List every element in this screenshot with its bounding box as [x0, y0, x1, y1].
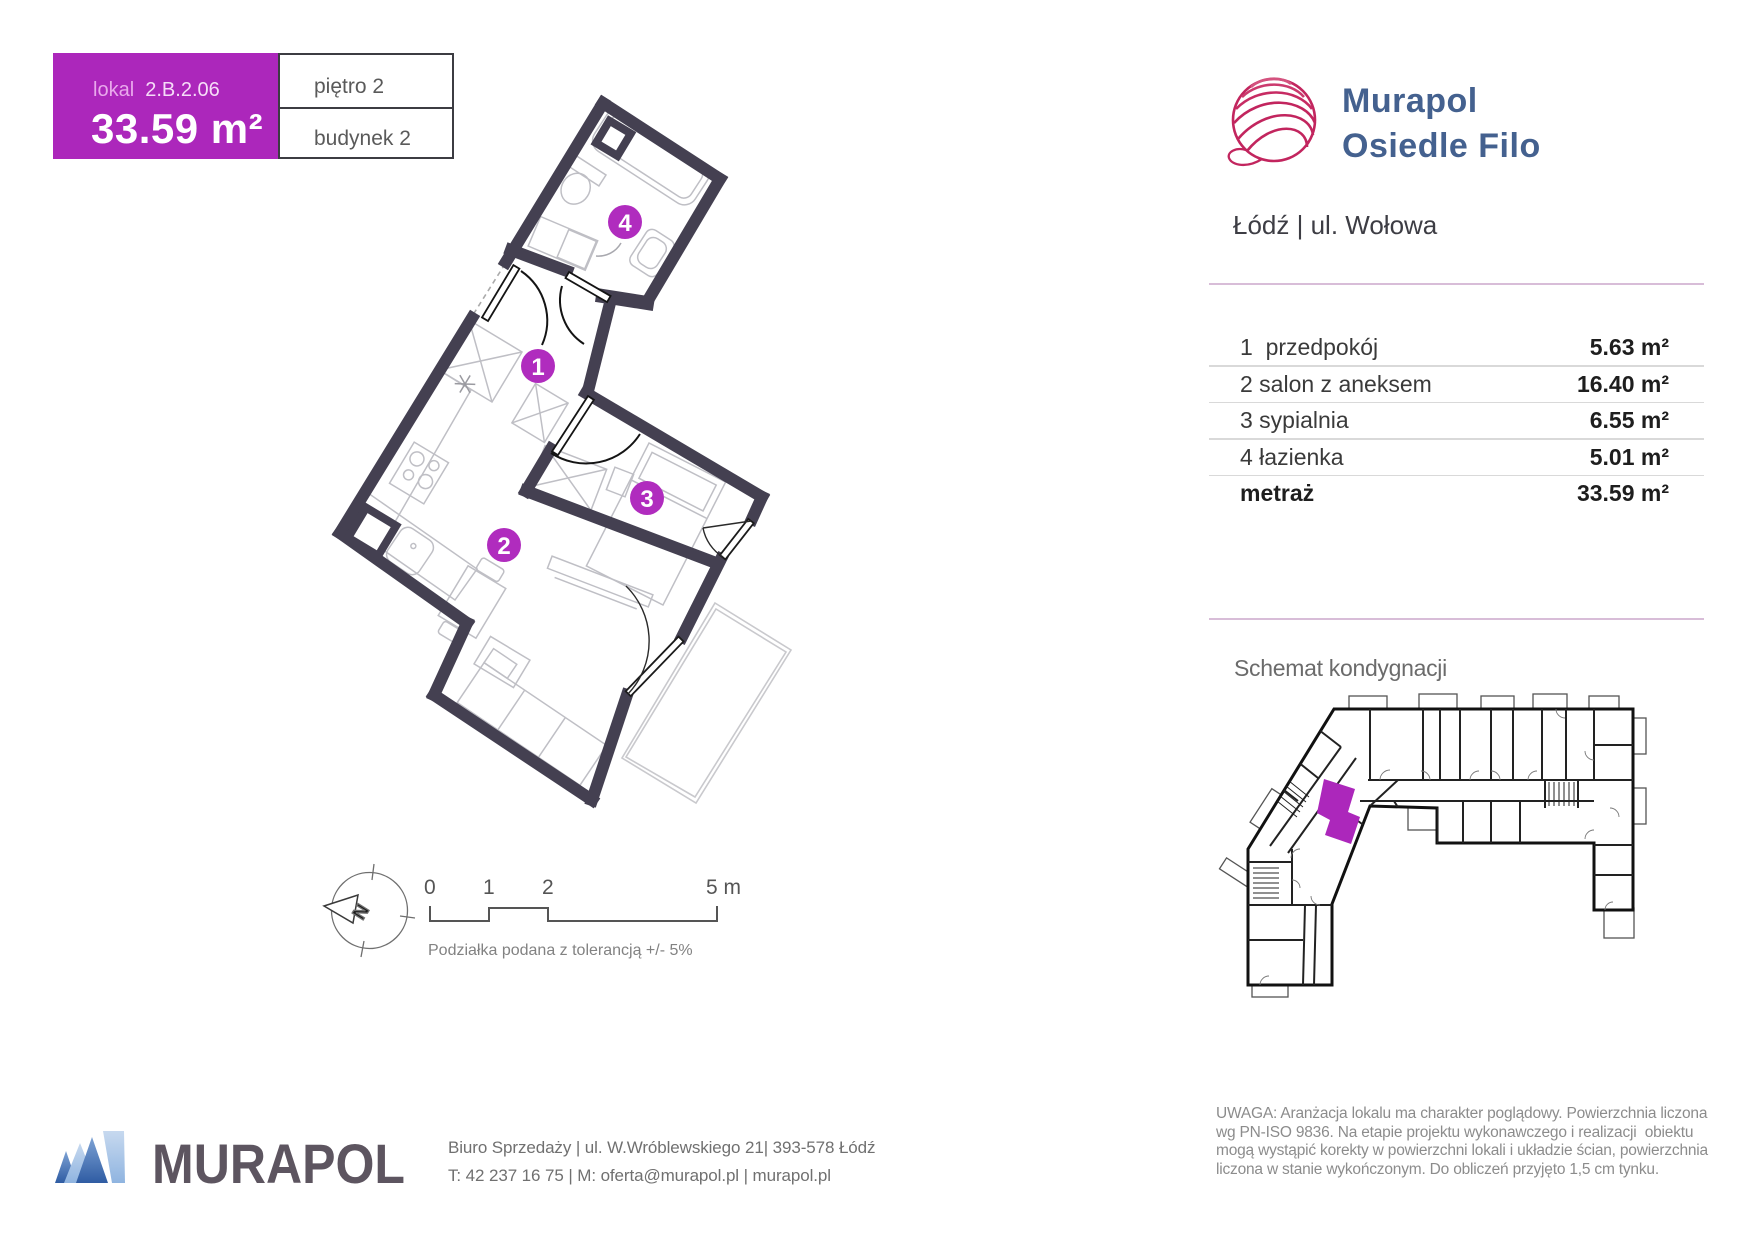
- svg-text:3: 3: [640, 486, 653, 513]
- svg-text:5 m: 5 m: [706, 876, 741, 899]
- svg-text:4: 4: [618, 210, 632, 237]
- svg-text:1: 1: [531, 354, 544, 381]
- svg-text:Podziałka podana z tolerancją: Podziałka podana z tolerancją +/- 5%: [428, 942, 693, 959]
- svg-text:2: 2: [542, 876, 554, 899]
- svg-text:1: 1: [483, 876, 495, 899]
- svg-text:0: 0: [424, 876, 436, 899]
- svg-text:MURAPOL: MURAPOL: [152, 1132, 405, 1195]
- svg-text:2: 2: [497, 533, 510, 560]
